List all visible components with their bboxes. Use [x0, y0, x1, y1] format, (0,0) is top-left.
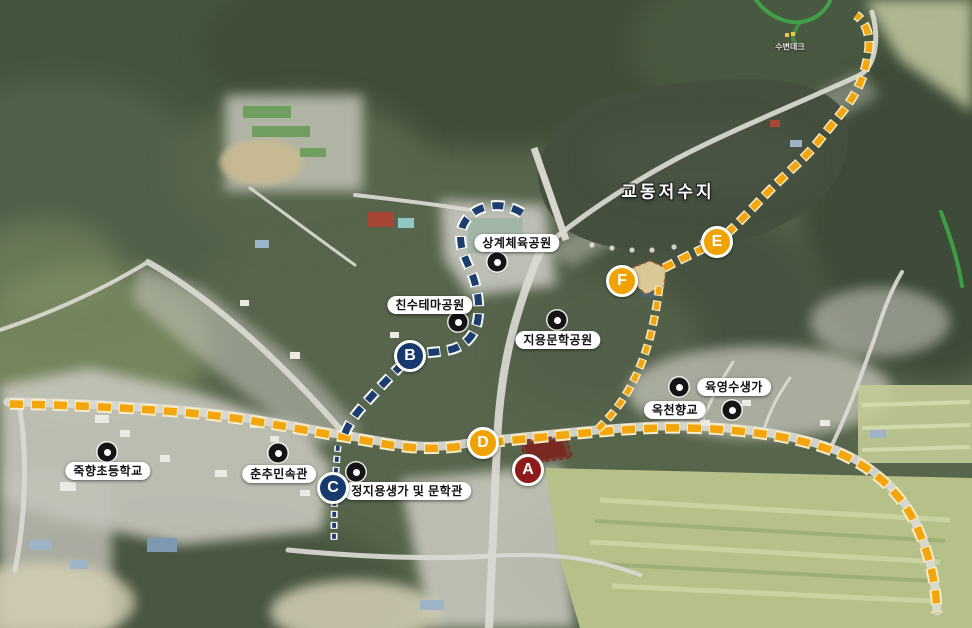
poi-dot-sanggye-sports-park[interactable] — [488, 253, 507, 272]
course-marker-d[interactable]: D — [467, 427, 499, 459]
course-marker-e[interactable]: E — [701, 226, 733, 258]
poi-dot-jiyong-literature-park[interactable] — [548, 311, 567, 330]
poi-label-jiyong-literature-park[interactable]: 지용문학공원 — [515, 331, 600, 349]
course-marker-c[interactable]: C — [317, 472, 349, 504]
course-marker-f[interactable]: F — [606, 265, 638, 297]
poi-label-jukhyang-elementary[interactable]: 죽향초등학교 — [65, 462, 150, 480]
poi-label-yukyeongsu-birthplace[interactable]: 육영수생가 — [697, 378, 771, 396]
poi-dot-okcheon-hyanggyo[interactable] — [723, 401, 742, 420]
poi-label-sanggye-sports-park[interactable]: 상계체육공원 — [474, 234, 559, 252]
poi-label-chinsu-theme-park[interactable]: 친수테마공원 — [387, 296, 472, 314]
poi-dot-chunchu-folk-house[interactable] — [269, 444, 288, 463]
satellite-base-map — [0, 0, 972, 628]
poi-label-jeongjiyong-birthplace[interactable]: 정지용생가 및 문학관 — [343, 482, 471, 500]
poi-dot-yukyeongsu-birthplace[interactable] — [670, 378, 689, 397]
course-marker-a[interactable]: A — [512, 454, 544, 486]
poi-dot-chinsu-theme-park[interactable] — [449, 313, 468, 332]
poi-dot-jukhyang-elementary[interactable] — [98, 443, 117, 462]
reservoir-label: 교동저수지 — [621, 178, 714, 203]
satellite-course-map: 교동저수지 수변데크 상계체육공원 친수테마공원 지용문학공원 육영수생가 옥천… — [0, 0, 972, 628]
poi-label-okcheon-hyanggyo[interactable]: 옥천향교 — [644, 401, 706, 419]
poi-dot-jeongjiyong-birthplace[interactable] — [347, 463, 366, 482]
poi-label-chunchu-folk-house[interactable]: 춘추민속관 — [242, 465, 316, 483]
base-mini-label: 수변데크 — [775, 42, 804, 53]
course-marker-b[interactable]: B — [394, 340, 426, 372]
